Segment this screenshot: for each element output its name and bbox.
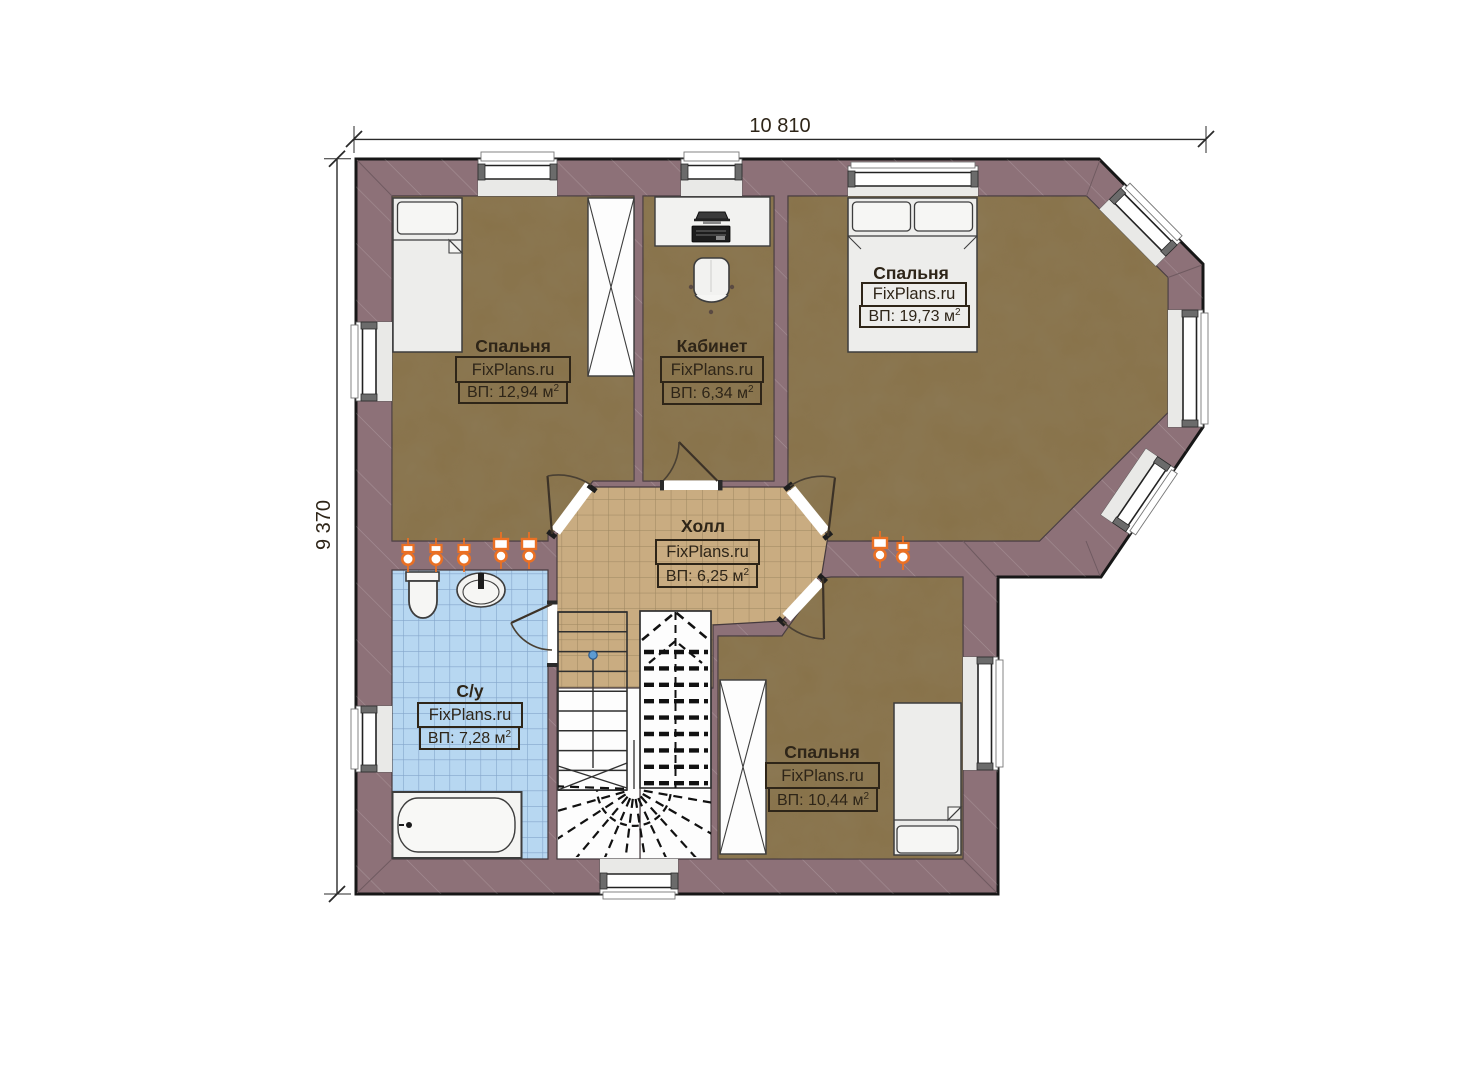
svg-text:ВП: 10,44 м2: ВП: 10,44 м2 bbox=[777, 791, 870, 809]
svg-text:FixPlans.ru: FixPlans.ru bbox=[781, 767, 864, 785]
svg-text:FixPlans.ru: FixPlans.ru bbox=[472, 361, 555, 379]
svg-text:Спальня: Спальня bbox=[873, 263, 949, 283]
svg-text:FixPlans.ru: FixPlans.ru bbox=[873, 285, 956, 303]
svg-text:FixPlans.ru: FixPlans.ru bbox=[666, 543, 749, 561]
svg-text:С/у: С/у bbox=[456, 681, 484, 701]
svg-text:ВП: 7,28 м2: ВП: 7,28 м2 bbox=[428, 729, 512, 747]
svg-text:10 810: 10 810 bbox=[749, 115, 810, 137]
svg-text:Холл: Холл bbox=[681, 516, 725, 536]
svg-text:ВП: 6,34 м2: ВП: 6,34 м2 bbox=[670, 384, 754, 402]
svg-text:FixPlans.ru: FixPlans.ru bbox=[429, 706, 512, 724]
svg-text:Спальня: Спальня bbox=[475, 336, 551, 356]
svg-text:9 370: 9 370 bbox=[313, 500, 335, 550]
svg-text:Спальня: Спальня bbox=[784, 742, 860, 762]
svg-text:ВП: 6,25 м2: ВП: 6,25 м2 bbox=[666, 567, 750, 585]
svg-text:ВП: 12,94 м2: ВП: 12,94 м2 bbox=[467, 383, 560, 401]
svg-text:ВП: 19,73 м2: ВП: 19,73 м2 bbox=[868, 307, 961, 325]
svg-text:Кабинет: Кабинет bbox=[677, 336, 748, 356]
svg-text:FixPlans.ru: FixPlans.ru bbox=[671, 361, 754, 379]
